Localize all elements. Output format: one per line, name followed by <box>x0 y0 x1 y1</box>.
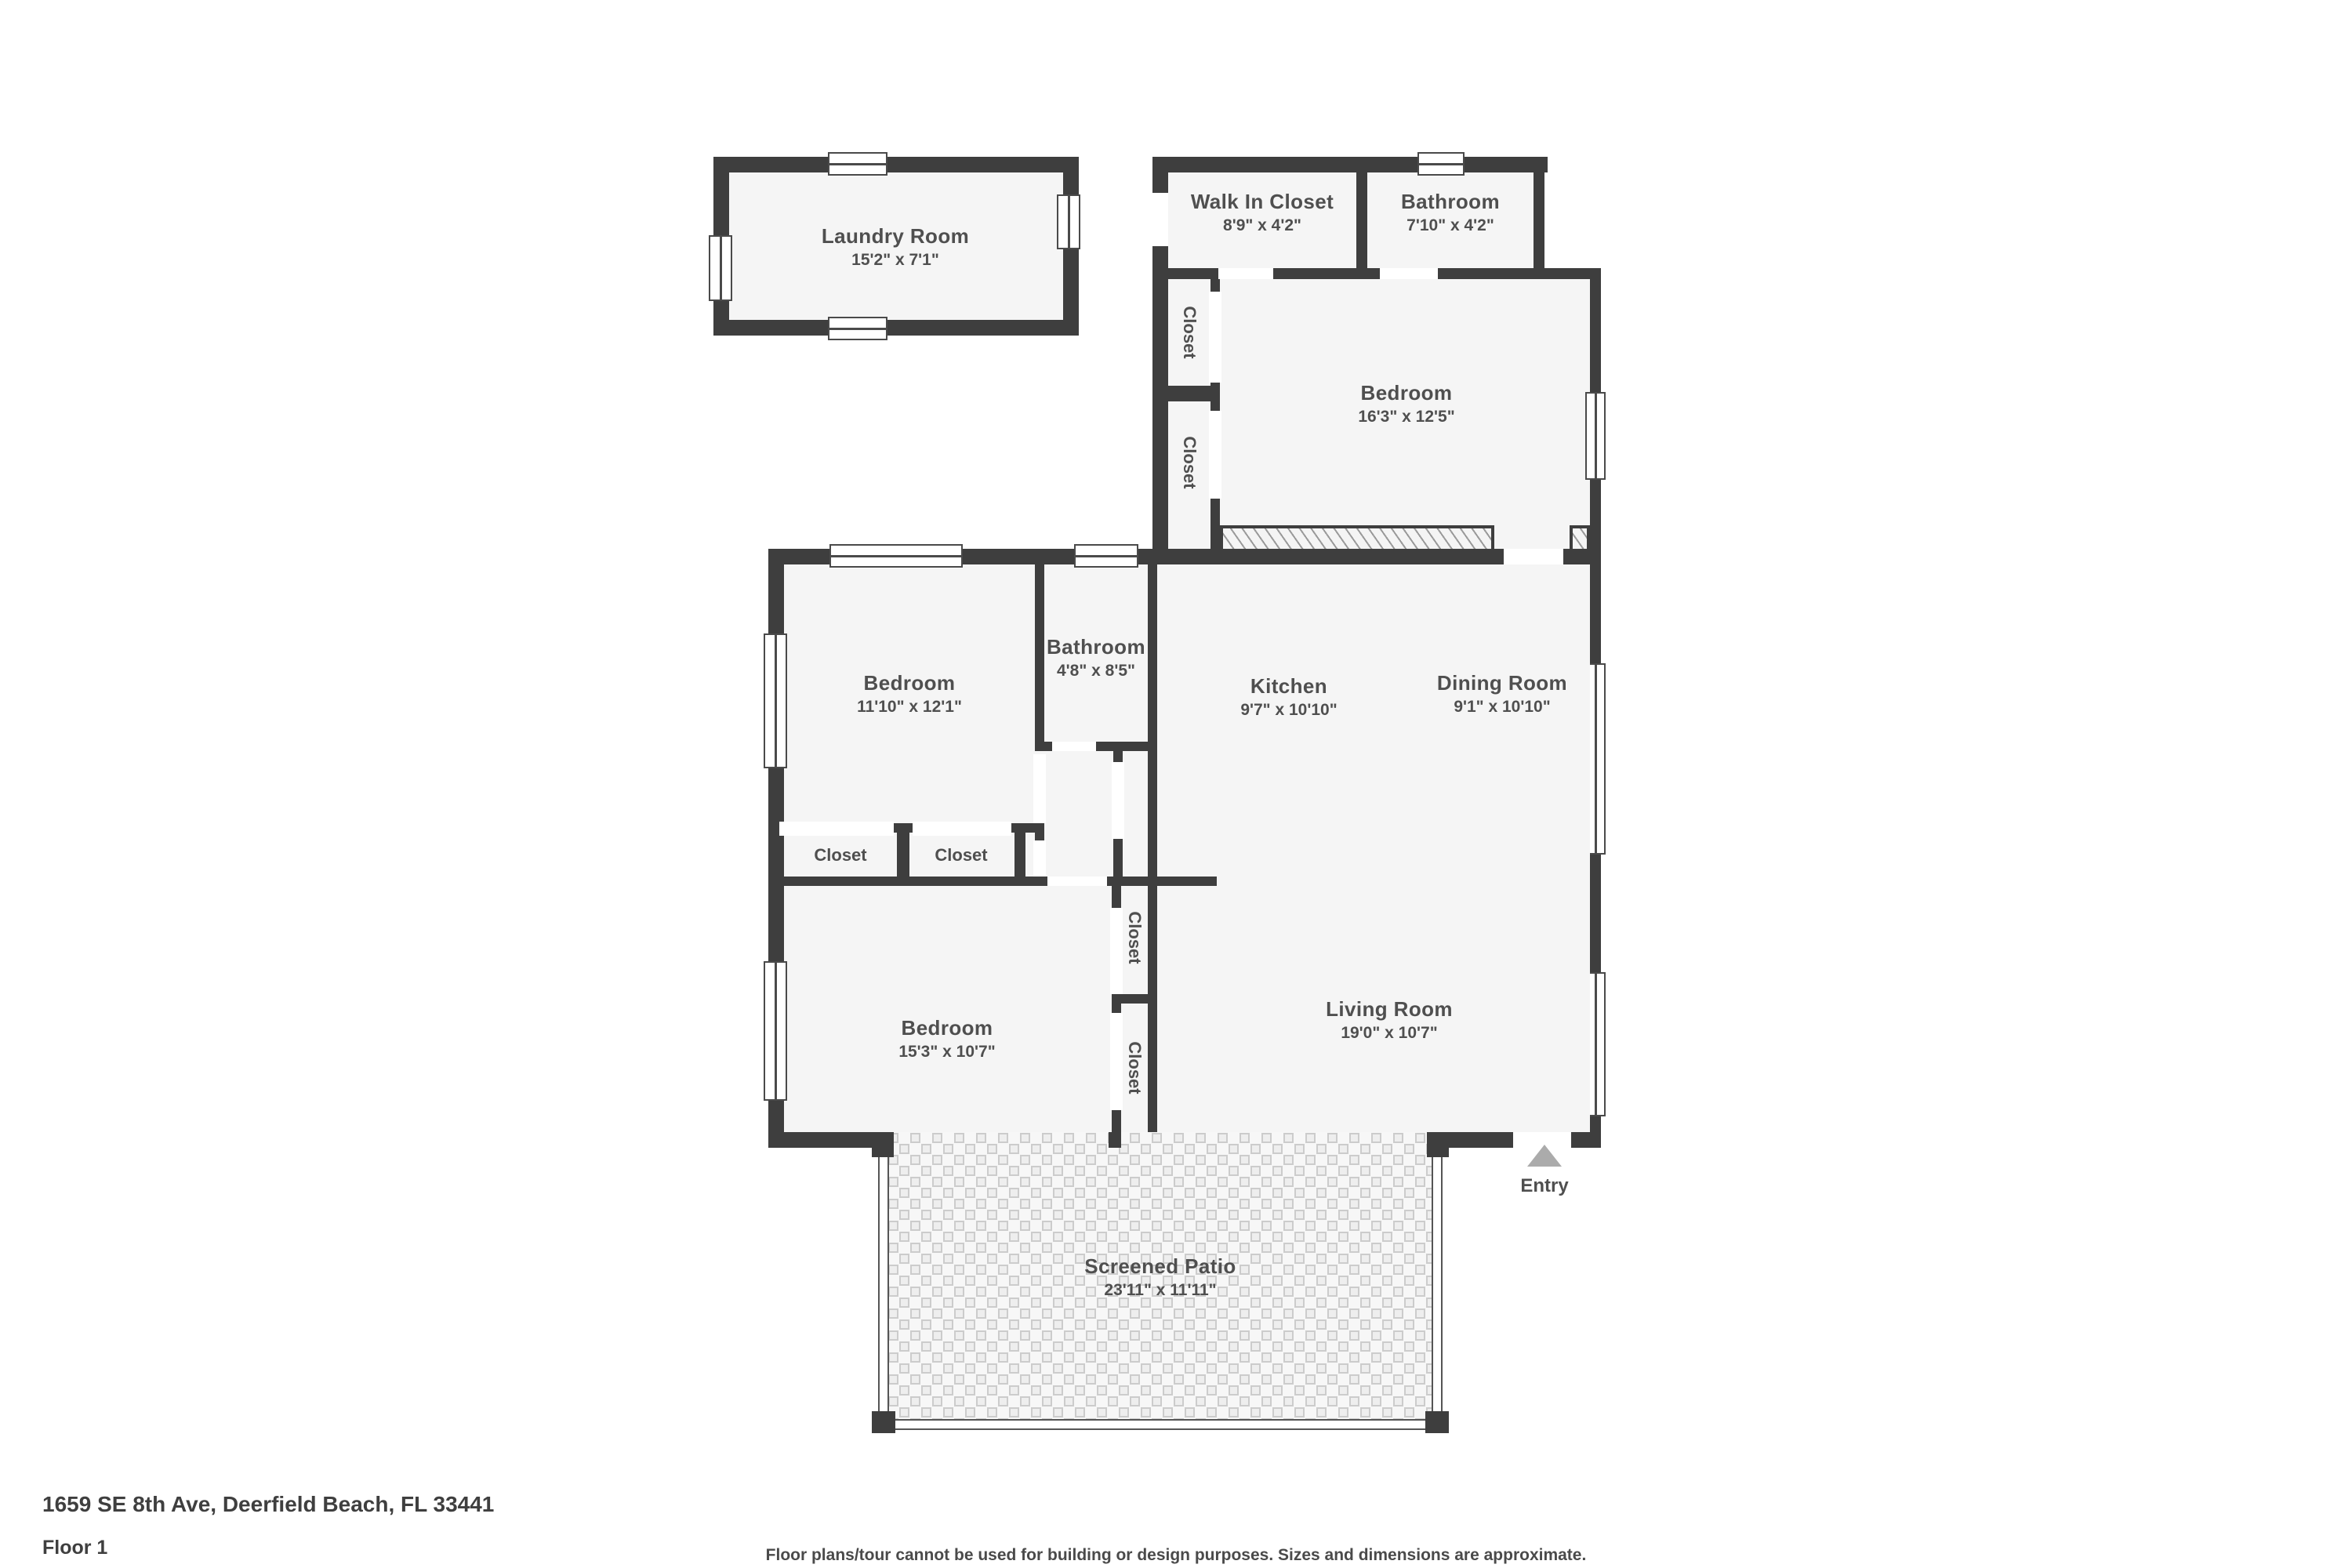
room-label-bathroom-small: Bathroom 4'8" x 8'5" <box>1047 635 1145 682</box>
window <box>1074 544 1138 568</box>
patio-screen-wall <box>1432 1156 1443 1424</box>
room-name: Dining Room <box>1437 671 1567 696</box>
patio-post <box>872 1132 894 1157</box>
room-dimensions: 15'2" x 7'1" <box>822 249 969 271</box>
patio-post <box>1109 1132 1121 1148</box>
door-gap <box>1152 193 1168 246</box>
door-gap <box>1033 754 1046 823</box>
room-dimensions: 23'11" x 11'11" <box>1084 1279 1236 1301</box>
closet-door-gap <box>1209 411 1221 499</box>
window <box>1585 392 1606 480</box>
wall <box>1534 172 1544 279</box>
wall <box>897 823 909 877</box>
patio-post <box>872 1411 895 1433</box>
closet-label: Closet <box>1179 306 1198 358</box>
room-name: Living Room <box>1326 997 1453 1022</box>
closet-door-gap <box>913 822 1011 836</box>
property-address: 1659 SE 8th Ave, Deerfield Beach, FL 334… <box>42 1491 494 1516</box>
door-gap <box>1033 840 1046 877</box>
patio-screen-wall <box>878 1154 889 1424</box>
wall <box>1168 386 1220 401</box>
patio-screen-wall <box>883 1419 1436 1430</box>
room-name: Kitchen <box>1240 674 1337 699</box>
room-name: Bathroom <box>1047 635 1145 660</box>
window <box>1417 152 1465 176</box>
hatched-area <box>1570 525 1590 552</box>
room-label-laundry: Laundry Room 15'2" x 7'1" <box>822 224 969 271</box>
window <box>764 961 787 1101</box>
room-name: Bathroom <box>1401 190 1500 215</box>
wall <box>1148 560 1157 1132</box>
room-dimensions: 8'9" x 4'2" <box>1191 215 1334 237</box>
closet-door-gap <box>1209 292 1221 383</box>
room-label-bedroom-top: Bedroom 16'3" x 12'5" <box>1358 381 1454 428</box>
room-name: Bedroom <box>857 671 962 696</box>
floor-plan-page: Laundry Room 15'2" x 7'1" Closet Closet … <box>0 0 2352 1568</box>
door-gap <box>1112 762 1124 839</box>
room-label-walk-in-closet: Walk In Closet 8'9" x 4'2" <box>1191 190 1334 237</box>
window <box>828 152 887 176</box>
door-gap <box>1380 268 1438 279</box>
closet-door-gap <box>779 822 894 836</box>
room-dimensions: 7'10" x 4'2" <box>1401 215 1500 237</box>
patio-post <box>1425 1411 1449 1433</box>
entry-arrow-icon <box>1527 1145 1562 1167</box>
room-label-dining: Dining Room 9'1" x 10'10" <box>1437 671 1567 718</box>
room-dimensions: 9'7" x 10'10" <box>1240 699 1337 721</box>
closet-label: Closet <box>1124 911 1143 964</box>
room-dimensions: 4'8" x 8'5" <box>1047 660 1145 682</box>
door-gap <box>1047 877 1107 886</box>
window <box>828 317 887 340</box>
room-name: Screened Patio <box>1084 1254 1236 1279</box>
window <box>764 633 787 768</box>
door-gap <box>1218 268 1273 279</box>
room-label-bathroom-top: Bathroom 7'10" x 4'2" <box>1401 190 1500 237</box>
door-gap <box>1504 549 1563 564</box>
closet-label: Closet <box>935 847 987 866</box>
room-dimensions: 15'3" x 10'7" <box>898 1041 995 1063</box>
window <box>709 235 732 301</box>
closet-label: Closet <box>1179 436 1198 488</box>
wall <box>1112 994 1157 1004</box>
room-name: Bedroom <box>1358 381 1454 406</box>
room-name: Walk In Closet <box>1191 190 1334 215</box>
room-dimensions: 19'0" x 10'7" <box>1326 1022 1453 1044</box>
room-dimensions: 16'3" x 12'5" <box>1358 406 1454 428</box>
wall <box>1035 564 1044 742</box>
door-gap <box>1052 742 1096 751</box>
closet-label: Closet <box>814 847 866 866</box>
room-label-bedroom-mid: Bedroom 11'10" x 12'1" <box>857 671 962 718</box>
patio-post <box>1427 1132 1449 1157</box>
closet-door-gap <box>1110 908 1123 994</box>
closet-label: Closet <box>1124 1041 1143 1094</box>
room-dimensions: 11'10" x 12'1" <box>857 696 962 718</box>
disclaimer-text: Floor plans/tour cannot be used for buil… <box>0 1546 2352 1565</box>
room-name: Bedroom <box>898 1016 995 1041</box>
window <box>1057 194 1080 249</box>
wall <box>713 320 1079 336</box>
entry-label: Entry <box>1520 1174 1568 1196</box>
room-name: Laundry Room <box>822 224 969 249</box>
wall <box>1152 157 1548 172</box>
window <box>829 544 963 568</box>
closet-door-gap <box>1110 1013 1123 1110</box>
room-label-kitchen: Kitchen 9'7" x 10'10" <box>1240 674 1337 721</box>
wall <box>1356 172 1367 279</box>
room-dimensions: 9'1" x 10'10" <box>1437 696 1567 718</box>
room-label-living: Living Room 19'0" x 10'7" <box>1326 997 1453 1044</box>
wall <box>713 157 1079 172</box>
hatched-area <box>1220 525 1494 552</box>
wall <box>768 877 1217 886</box>
room-label-bedroom-bottom: Bedroom 15'3" x 10'7" <box>898 1016 995 1063</box>
room-label-patio: Screened Patio 23'11" x 11'11" <box>1084 1254 1236 1301</box>
